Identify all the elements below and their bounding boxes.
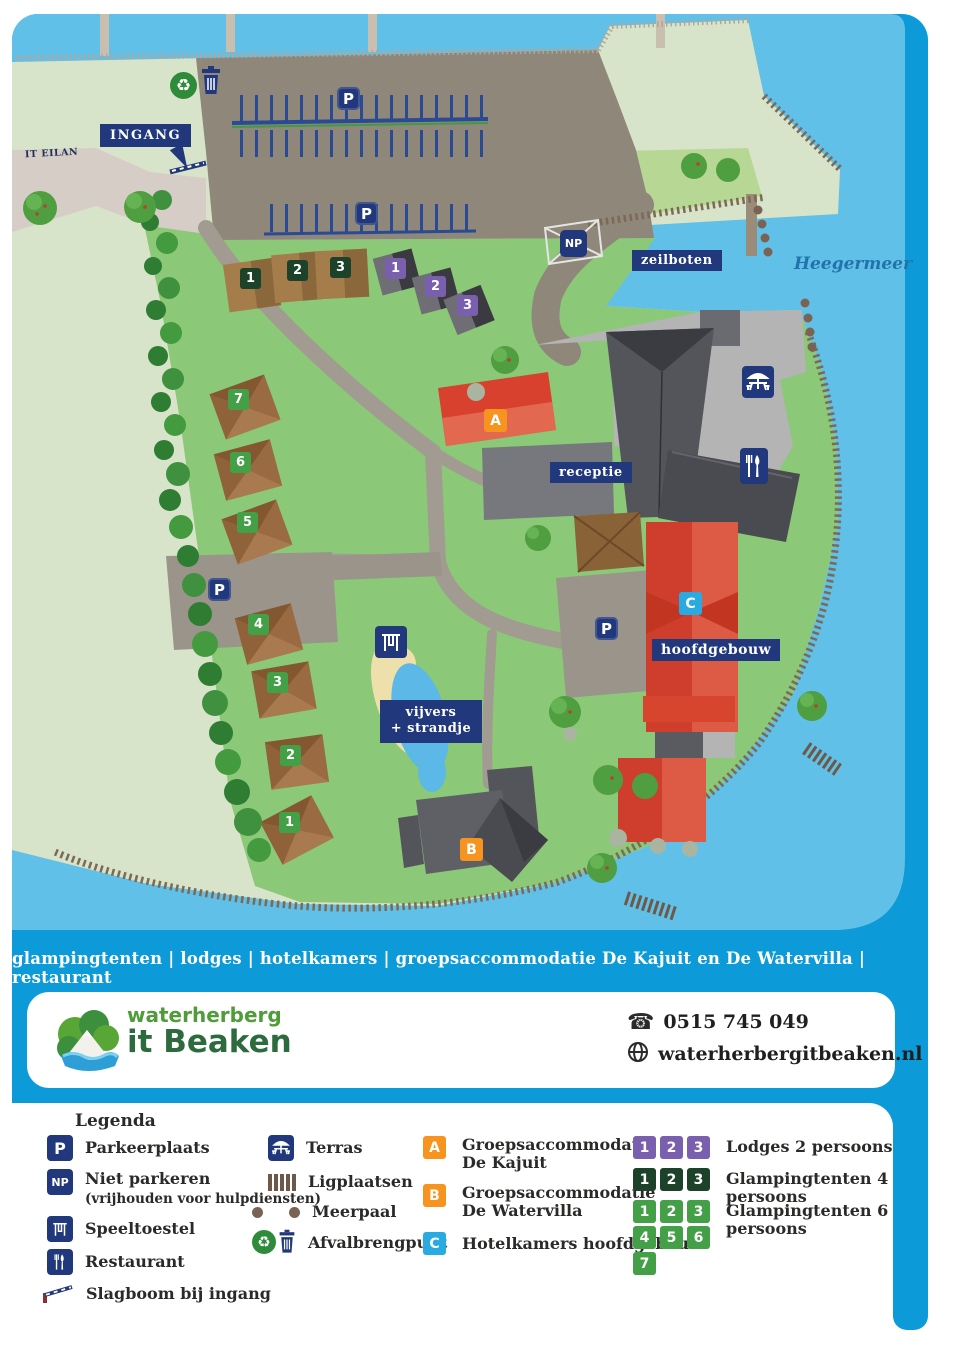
legend-item-glamping-6p: 1 2 3 4 5 6 7 Glampingtenten 6 persoons <box>633 1200 893 1278</box>
harbor-label: zeilboten <box>632 250 722 271</box>
contact-card: waterherberg it Beaken ☎ 0515 745 049 wa… <box>27 992 895 1088</box>
playground-icon <box>375 626 407 658</box>
glamping-6p-number-squares: 1 2 3 4 5 6 7 <box>633 1200 714 1278</box>
brand-line1: waterherberg <box>127 1005 292 1025</box>
tent-4p-2: 2 <box>287 260 308 281</box>
brown-shed <box>574 512 644 572</box>
terrace-icon <box>742 366 774 398</box>
tent-6p-7: 7 <box>228 389 249 410</box>
legend-item-de-kajuit: A GroepsaccommodatieDe Kajuit <box>423 1136 655 1173</box>
restaurant-icon <box>740 448 768 484</box>
legend-item-parkeerplaats: P Parkeerplaats <box>47 1135 210 1161</box>
trash-icon <box>200 66 222 96</box>
globe-icon <box>627 1041 649 1068</box>
website-url[interactable]: waterherbergitbeaken.nl <box>658 1043 923 1065</box>
brand-line2: it Beaken <box>127 1025 292 1059</box>
reception-label: receptie <box>550 462 632 483</box>
tent-6p-2: 2 <box>280 745 301 766</box>
mooring-icon <box>252 1199 300 1225</box>
legend-item-afvalbrengpunt: ♻ Afvalbrengpunt <box>252 1229 447 1255</box>
parking-sign-north-1: P <box>337 87 360 110</box>
parking-sign-east: P <box>595 617 618 640</box>
recycling-icon: ♻ <box>170 72 197 99</box>
map-artwork <box>12 14 928 930</box>
page: ♻ INGANG IT EILAN P P P P NP 1 2 3 1 2 3… <box>0 0 960 1357</box>
main-building-label: hoofdgebouw <box>652 639 780 661</box>
marker-a: A <box>484 409 507 432</box>
badge-a: A <box>423 1136 446 1159</box>
lake-name: Heegermeer <box>794 254 912 274</box>
legend-item-ligplaatsen: Ligplaatsen <box>268 1169 413 1195</box>
legend-item-meerpaal: Meerpaal <box>252 1199 397 1225</box>
lodge-1: 1 <box>385 258 406 279</box>
brand-name: waterherberg it Beaken <box>127 1005 292 1059</box>
marker-b: B <box>460 838 483 861</box>
parking-sign-west: P <box>208 578 231 601</box>
legend-item-speeltoestel: Speeltoestel <box>47 1216 195 1242</box>
berths-icon <box>268 1169 296 1195</box>
legend-item-lodges: 1 2 3 Lodges 2 persoons <box>633 1136 893 1159</box>
right-blue-strip <box>893 1135 928 1330</box>
legend-item-de-watervilla: B GroepsaccommodatieDe Watervilla <box>423 1184 655 1221</box>
no-parking-sign: NP <box>560 230 587 257</box>
tent-6p-3: 3 <box>267 672 288 693</box>
tent-6p-1: 1 <box>279 812 300 833</box>
entrance-flag: INGANG <box>100 124 191 147</box>
tent-6p-4: 4 <box>248 614 269 635</box>
tent-4p-3: 3 <box>330 257 351 278</box>
badge-b: B <box>423 1184 446 1207</box>
parking-sign-north-2: P <box>355 202 378 225</box>
waste-icon: ♻ <box>252 1229 296 1255</box>
marker-c: C <box>679 592 702 615</box>
playground-icon <box>47 1216 73 1242</box>
pond-beach-label: vijvers + strandje <box>380 700 482 743</box>
brand-logo <box>53 1004 123 1076</box>
no-parking-icon: NP <box>47 1169 73 1195</box>
tent-6p-5: 5 <box>237 512 258 533</box>
restaurant-icon <box>47 1249 73 1275</box>
phone-icon: ☎ <box>627 1010 654 1035</box>
harbor-pier <box>746 194 757 256</box>
legend-item-slagboom: Slagboom bij ingang <box>40 1283 271 1309</box>
legend-item-restaurant: Restaurant <box>47 1249 185 1275</box>
lodge-3: 3 <box>457 295 478 316</box>
website-row: waterherbergitbeaken.nl <box>627 1038 923 1070</box>
phone-row: ☎ 0515 745 049 <box>627 1006 923 1038</box>
terrace-icon <box>268 1135 294 1161</box>
legend-title: Legenda <box>75 1111 156 1131</box>
lodge-number-squares: 1 2 3 <box>633 1136 714 1159</box>
parking-west-stub <box>332 552 442 580</box>
tent-6p-6: 6 <box>230 452 251 473</box>
barrier-icon <box>40 1283 74 1309</box>
legend: Legenda P Parkeerplaats NP Niet parkeren… <box>0 1103 893 1357</box>
contact-info: ☎ 0515 745 049 waterherbergitbeaken.nl <box>627 1006 923 1070</box>
parking-icon: P <box>47 1135 73 1161</box>
glamping-4p-number-squares: 1 2 3 <box>633 1168 714 1191</box>
badge-c: C <box>423 1232 446 1255</box>
legend-item-terras: Terras <box>268 1135 362 1161</box>
site-map: ♻ INGANG IT EILAN P P P P NP 1 2 3 1 2 3… <box>12 14 928 1135</box>
tent-4p-1: 1 <box>240 268 261 289</box>
lodge-2: 2 <box>425 276 446 297</box>
phone-number[interactable]: 0515 745 049 <box>663 1011 808 1033</box>
